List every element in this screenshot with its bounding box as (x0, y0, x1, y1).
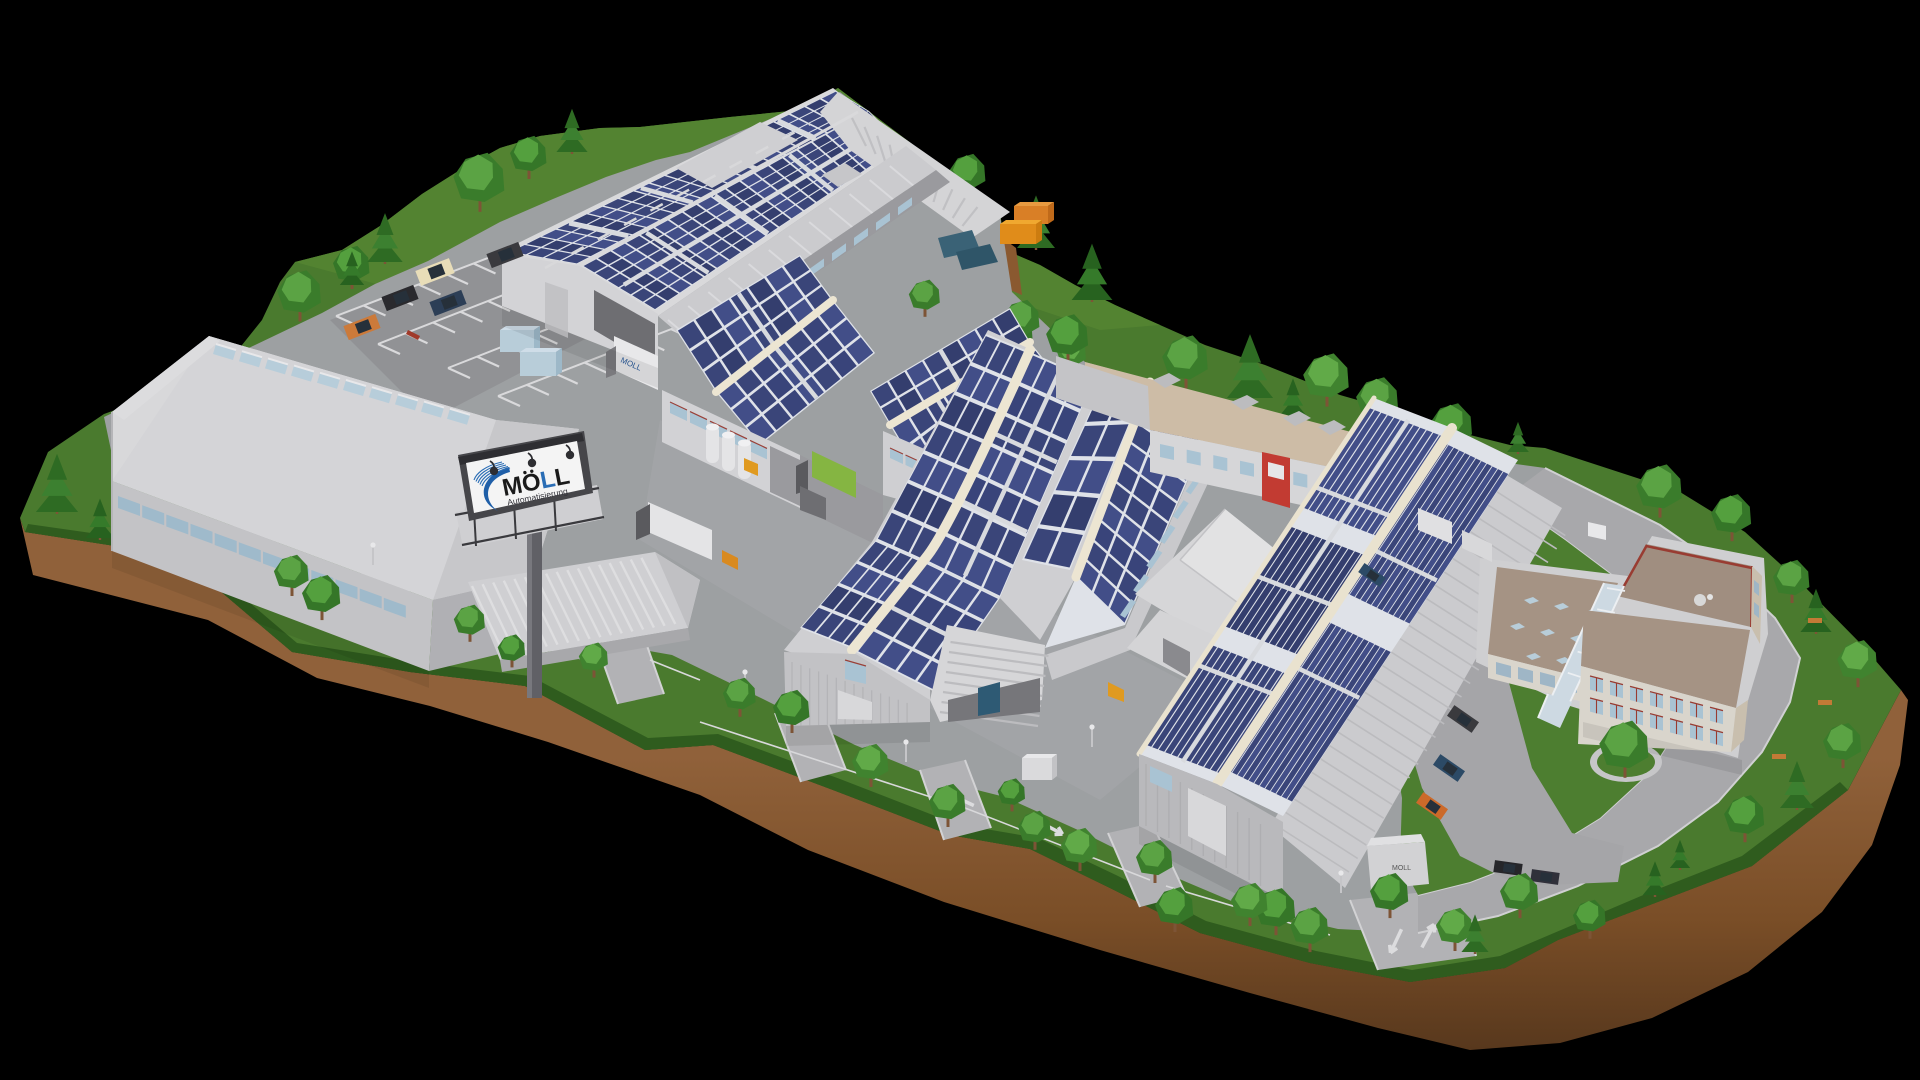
svg-text:MOLL: MOLL (1392, 865, 1411, 872)
